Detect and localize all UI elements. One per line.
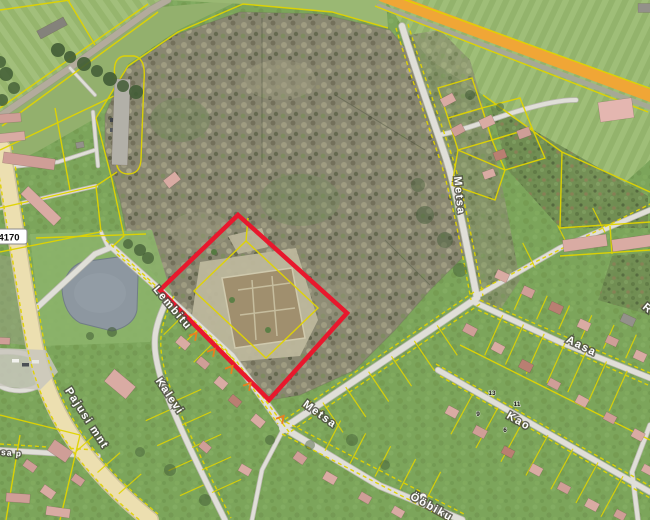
tree	[135, 447, 145, 457]
parcel-number: 13	[488, 390, 496, 397]
building	[0, 113, 21, 124]
tree	[51, 43, 65, 57]
tree	[164, 464, 176, 476]
pond-highlight	[74, 273, 126, 313]
tree	[129, 85, 143, 99]
tree	[103, 72, 117, 86]
tree	[134, 244, 146, 256]
tree	[496, 103, 504, 111]
parcel-number: 11	[514, 401, 521, 408]
tree	[380, 460, 390, 470]
tree	[91, 65, 103, 77]
tree	[437, 232, 453, 248]
tree	[8, 82, 20, 94]
parcel-number: 6	[503, 427, 507, 434]
tree	[346, 434, 358, 446]
building	[6, 493, 31, 504]
forest-light-patch	[244, 60, 316, 100]
building	[638, 4, 650, 13]
forest-green-patch	[260, 174, 340, 226]
tree	[199, 494, 211, 506]
tree	[117, 80, 129, 92]
tree	[77, 57, 91, 71]
car	[32, 360, 39, 364]
road-number-badge: 4170	[0, 229, 27, 244]
pond-area	[30, 230, 172, 346]
map-viewport[interactable]: Pajusi mnt Lembitu Kalevi Metsa Metsa Aa…	[0, 0, 650, 520]
aerial-map-canvas[interactable]: Pajusi mnt Lembitu Kalevi Metsa Metsa Aa…	[0, 0, 650, 520]
car	[22, 363, 29, 367]
tree	[107, 327, 117, 337]
building	[0, 337, 10, 345]
car	[12, 359, 19, 363]
tree	[265, 435, 275, 445]
bush	[211, 249, 217, 255]
building	[112, 79, 131, 166]
bush	[229, 297, 235, 303]
building	[76, 141, 85, 148]
tree	[64, 51, 76, 63]
tree	[86, 332, 94, 340]
tree	[305, 440, 315, 450]
tree	[465, 90, 475, 100]
forest-green-patch	[150, 98, 210, 142]
road-number-text: 4170	[0, 233, 20, 244]
tree	[453, 263, 467, 277]
tree	[416, 206, 434, 224]
parcel-number: 9	[476, 411, 480, 418]
tree	[123, 239, 133, 249]
tree	[411, 178, 425, 192]
street-label-kesa-partial: Kesa p	[0, 446, 22, 458]
bush	[265, 327, 271, 333]
